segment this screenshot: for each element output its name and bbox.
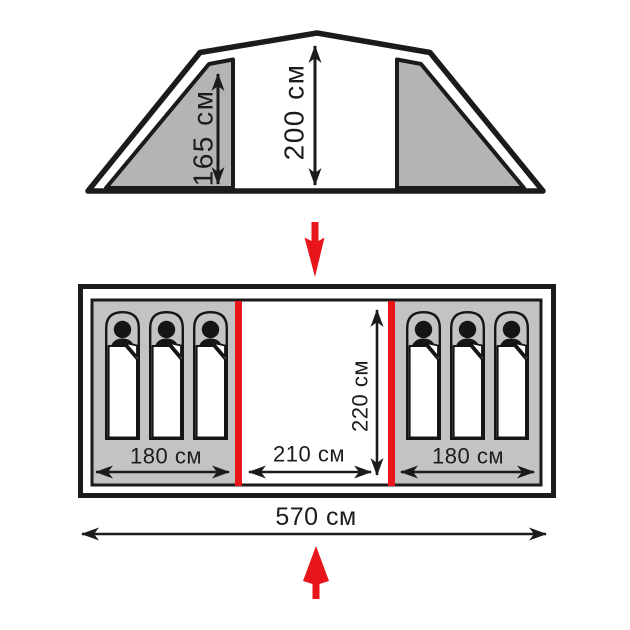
center-height-label: 200 см	[279, 64, 310, 161]
tent-dimensions-diagram: 165 см 200 см 220 см 180 см 210 см 180 с…	[0, 0, 630, 630]
tent-floor-plan: 220 см 180 см 210 см 180 см	[81, 287, 554, 496]
diagram-canvas: 165 см 200 см 220 см 180 см 210 см 180 с…	[0, 0, 630, 630]
tent-right-wall-panel	[397, 60, 524, 189]
left-room-width-label: 180 см	[130, 444, 202, 469]
inner-height-label: 165 см	[188, 90, 219, 187]
sleeper-icon	[194, 312, 227, 439]
tent-side-view: 165 см 200 см	[88, 33, 543, 191]
total-length-dimension: 570 см	[82, 503, 546, 534]
room-depth-label: 220 см	[348, 360, 373, 432]
sleeper-icon	[451, 312, 484, 439]
red-up-arrow-icon	[303, 546, 329, 599]
sleeper-icon	[407, 312, 440, 439]
red-down-arrow-icon	[305, 222, 325, 277]
sleeper-icon	[106, 312, 139, 439]
right-room-width-label: 180 см	[432, 444, 504, 469]
right-divider	[388, 301, 395, 486]
left-divider	[235, 301, 242, 486]
sleeper-icon	[495, 312, 528, 439]
vestibule-width-label: 210 см	[273, 442, 345, 467]
total-length-label: 570 см	[275, 503, 356, 531]
sleeper-icon	[150, 312, 183, 439]
